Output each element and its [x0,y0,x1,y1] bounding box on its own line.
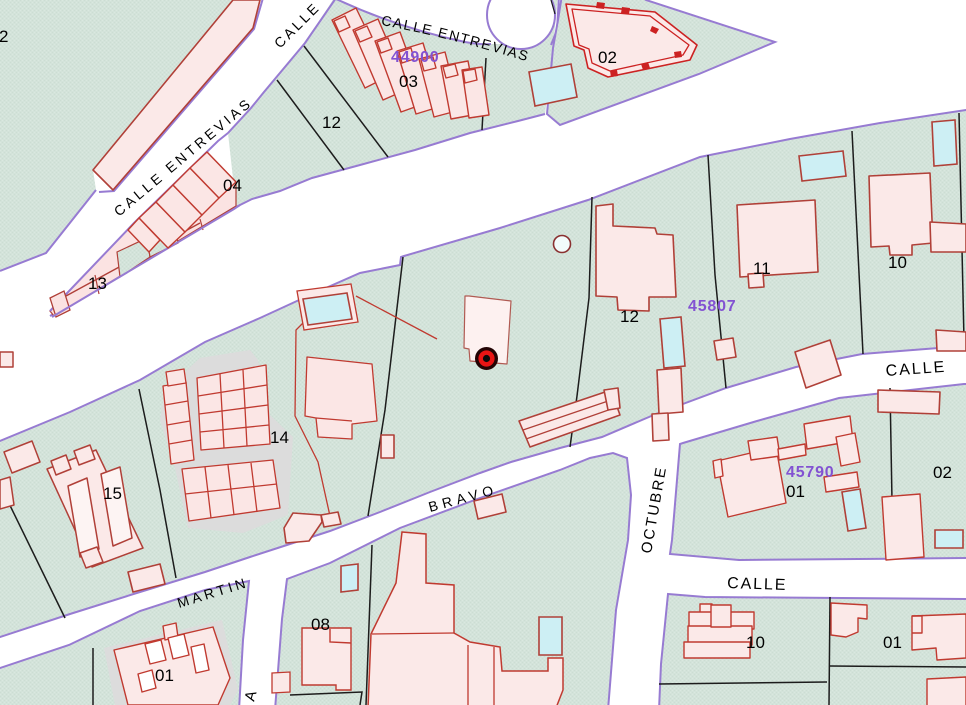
svg-text:01: 01 [155,666,174,685]
svg-text:01: 01 [883,633,902,652]
svg-text:15: 15 [103,484,122,503]
svg-text:10: 10 [888,253,907,272]
svg-text:08: 08 [311,615,330,634]
svg-text:02: 02 [598,48,617,67]
svg-text:12: 12 [322,113,341,132]
svg-text:13: 13 [88,274,107,293]
svg-text:04: 04 [223,176,242,195]
svg-text:11: 11 [753,259,771,278]
svg-text:01: 01 [786,482,805,501]
svg-text:03: 03 [399,72,418,91]
svg-text:02: 02 [933,463,952,482]
svg-text:12: 12 [620,307,639,326]
svg-text:44900: 44900 [391,49,440,66]
svg-text:45807: 45807 [688,298,737,315]
svg-text:45790: 45790 [786,464,835,481]
svg-text:14: 14 [270,428,289,447]
svg-text:2: 2 [0,27,8,46]
svg-text:CALLE: CALLE [727,575,788,594]
svg-text:10: 10 [746,633,765,652]
